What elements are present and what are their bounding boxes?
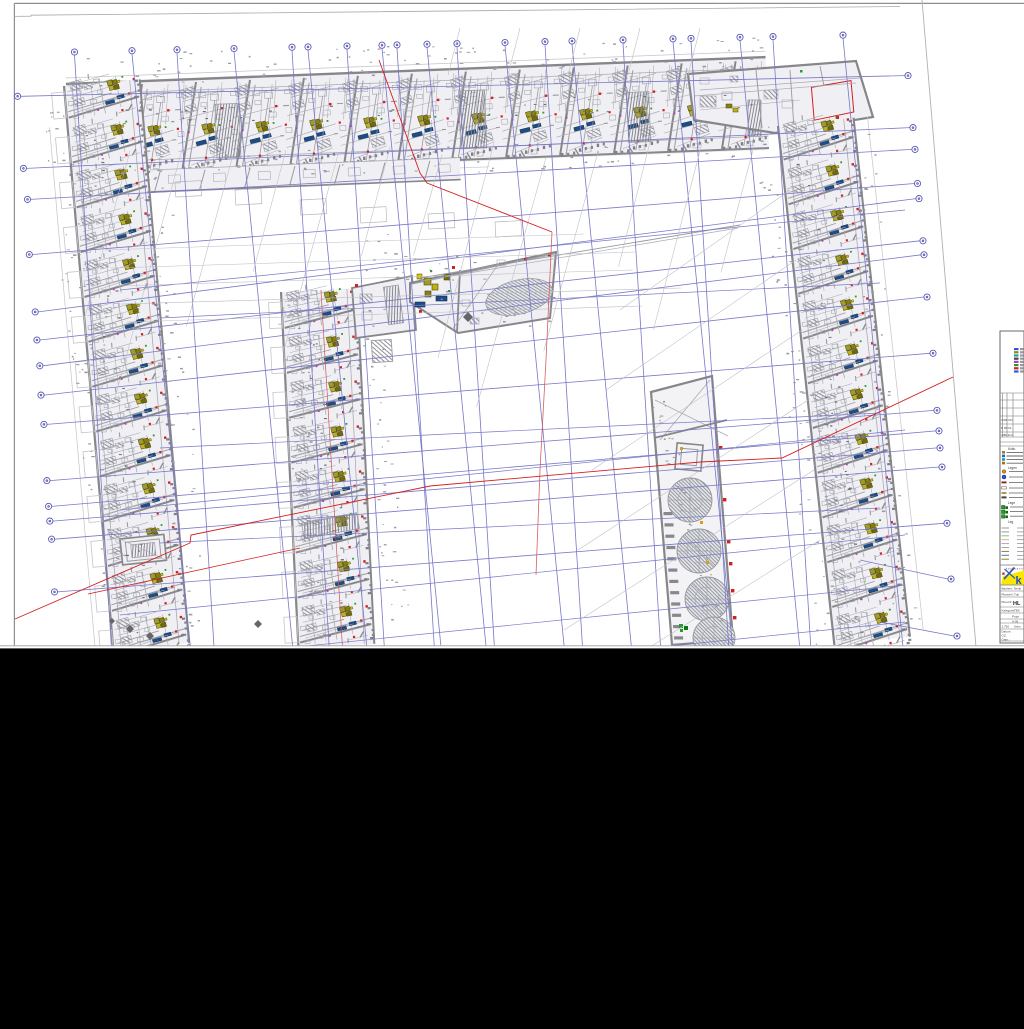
svg-text:010: 010 — [1008, 418, 1013, 422]
svg-text:Kultu: Kultu — [1008, 447, 1015, 451]
svg-text:1:750: 1:750 — [1002, 625, 1010, 629]
svg-text:Bauherr:: Bauherr: — [1002, 587, 1014, 591]
svg-text:Leg: Leg — [1008, 520, 1014, 524]
svg-text:Proje: Proje — [1012, 615, 1019, 619]
svg-text:01-: 01- — [1008, 426, 1012, 430]
svg-text:Ersi: Ersi — [1008, 433, 1014, 437]
svg-text:Neub: Neub — [1014, 587, 1022, 591]
svg-text:Gepr.:: Gepr.: — [1002, 638, 1010, 642]
svg-text:Legen: Legen — [1008, 466, 1017, 470]
svg-text:Schn: Schn — [1014, 625, 1021, 629]
svg-text:k a u f m a n n: k a u f m a n n — [1006, 567, 1023, 571]
svg-text:B: B — [1001, 426, 1003, 430]
svg-text:Plan-Nr.:: Plan-Nr.: — [1002, 600, 1014, 604]
svg-text:Trip: Trip — [1014, 593, 1019, 597]
svg-text:TEK: TEK — [1014, 609, 1020, 613]
svg-text:Lege: Lege — [1008, 501, 1015, 505]
svg-text:Planverf.:: Planverf.: — [1002, 593, 1015, 597]
svg-text:HL: HL — [1013, 601, 1021, 607]
svg-text:A-06: A-06 — [1012, 620, 1019, 624]
